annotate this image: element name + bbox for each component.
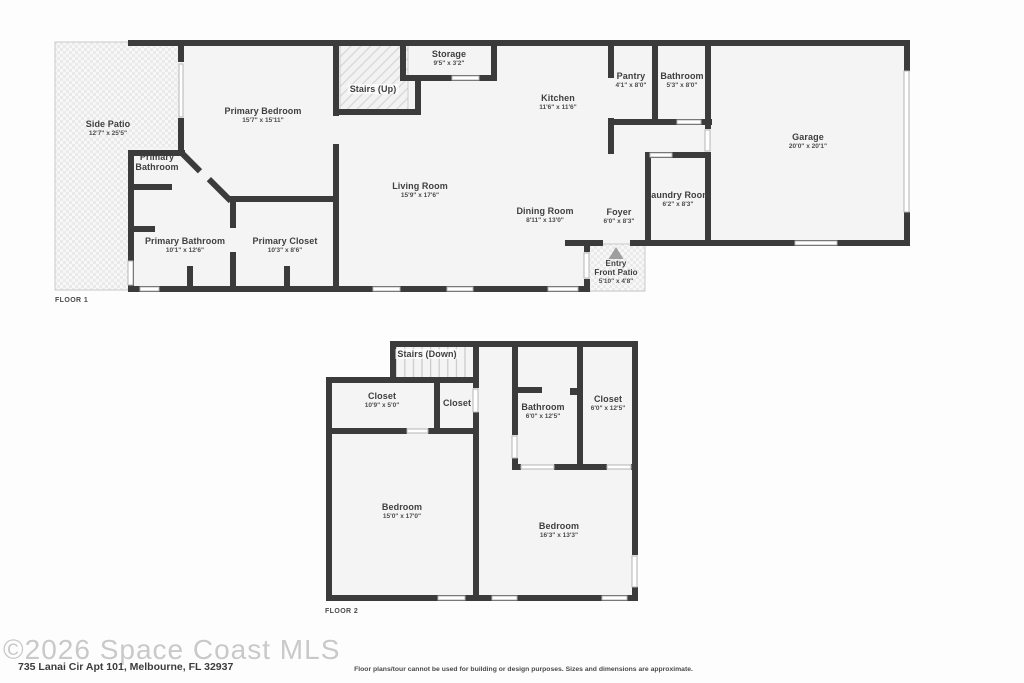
room-bedroom-2: Bedroom 16'3" x 13'3" xyxy=(539,521,579,540)
floor2-label: FLOOR 2 xyxy=(325,608,358,615)
room-stairs-down: Stairs (Down) xyxy=(395,349,458,359)
room-dims: 6'0" x 8'3" xyxy=(604,217,635,226)
room-name-2: Front Patio xyxy=(594,268,637,277)
disclaimer-text: Floor plans/tour cannot be used for buil… xyxy=(300,666,747,673)
floorplan-drawing xyxy=(0,0,1024,683)
room-name: Stairs (Down) xyxy=(395,349,458,359)
floorplan-page: Side Patio 12'7" x 25'5" Primary Bedroom… xyxy=(0,0,1024,683)
room-name: Pantry xyxy=(616,71,647,81)
room-name: Dining Room xyxy=(516,206,573,216)
room-name: Side Patio xyxy=(86,119,131,129)
room-dims: 6'0" x 12'5" xyxy=(591,404,626,413)
room-dims: 10'9" x 5'0" xyxy=(365,401,400,410)
room-foyer: Foyer 6'0" x 8'3" xyxy=(604,207,635,226)
room-closet-2: Closet xyxy=(443,398,471,408)
room-bedroom-1: Bedroom 15'0" x 17'0" xyxy=(382,502,422,521)
room-dims: 20'0" x 20'1" xyxy=(789,142,827,151)
room-closet-1: Closet 10'9" x 5'0" xyxy=(365,391,400,410)
room-primary-bathroom-small: Primary Bathroom xyxy=(128,152,186,172)
room-name: Bedroom xyxy=(382,502,422,512)
room-dims: 10'1" x 12'6" xyxy=(145,246,225,255)
room-dims: 5'3" x 8'0" xyxy=(660,81,703,90)
room-side-patio: Side Patio 12'7" x 25'5" xyxy=(86,119,131,138)
room-kitchen: Kitchen 11'6" x 11'6" xyxy=(539,93,576,112)
room-closet-3: Closet 6'0" x 12'5" xyxy=(591,394,626,413)
room-living: Living Room 15'9" x 17'6" xyxy=(392,181,448,200)
room-dims: 15'7" x 15'11" xyxy=(224,116,301,125)
room-dims: 16'3" x 13'3" xyxy=(539,531,579,540)
room-dining: Dining Room 8'11" x 13'0" xyxy=(516,206,573,225)
room-storage: Storage 9'5" x 3'2" xyxy=(432,49,466,68)
room-dims: 6'2" x 8'3" xyxy=(646,200,711,209)
room-dims: 12'7" x 25'5" xyxy=(86,129,131,138)
room-primary-bathroom: Primary Bathroom 10'1" x 12'6" xyxy=(145,236,225,255)
room-primary-bedroom: Primary Bedroom 15'7" x 15'11" xyxy=(224,106,301,125)
room-name: Primary Closet xyxy=(253,236,318,246)
room-name: Stairs (Up) xyxy=(348,84,399,94)
room-garage: Garage 20'0" x 20'1" xyxy=(789,132,827,151)
room-dims: 10'3" x 8'6" xyxy=(253,246,318,255)
room-name: Bathroom xyxy=(660,71,703,81)
room-dims: 4'1" x 8'0" xyxy=(616,81,647,90)
room-name: Kitchen xyxy=(539,93,576,103)
room-name: Primary Bedroom xyxy=(224,106,301,116)
room-name: Closet xyxy=(365,391,400,401)
room-dims: 6'0" x 12'5" xyxy=(521,412,564,421)
room-name: Laundry Room xyxy=(646,190,711,200)
room-dims: 5'10" x 4'8" xyxy=(594,277,637,286)
room-dims: 9'5" x 3'2" xyxy=(432,59,466,68)
property-address: 735 Lanai Cir Apt 101, Melbourne, FL 329… xyxy=(18,661,233,673)
room-bathroom-f1: Bathroom 5'3" x 8'0" xyxy=(660,71,703,90)
room-dims: 15'0" x 17'0" xyxy=(382,512,422,521)
room-laundry: Laundry Room 6'2" x 8'3" xyxy=(646,190,711,209)
room-name: Bedroom xyxy=(539,521,579,531)
room-name: Primary Bathroom xyxy=(145,236,225,246)
room-primary-closet: Primary Closet 10'3" x 8'6" xyxy=(253,236,318,255)
room-dims: 8'11" x 13'0" xyxy=(516,216,573,225)
room-name: Entry xyxy=(594,259,637,268)
room-dims: 15'9" x 17'6" xyxy=(392,191,448,200)
room-pantry: Pantry 4'1" x 8'0" xyxy=(616,71,647,90)
room-name: Primary Bathroom xyxy=(128,152,186,172)
room-name: Storage xyxy=(432,49,466,59)
room-name: Closet xyxy=(591,394,626,404)
room-name: Garage xyxy=(789,132,827,142)
room-name: Closet xyxy=(443,398,471,408)
room-dims: 11'6" x 11'6" xyxy=(539,103,576,112)
room-name: Bathroom xyxy=(521,402,564,412)
room-entry-front-patio: Entry Front Patio 5'10" x 4'8" xyxy=(594,259,637,286)
room-name: Living Room xyxy=(392,181,448,191)
room-name: Foyer xyxy=(604,207,635,217)
floor1-label: FLOOR 1 xyxy=(55,297,88,304)
room-stairs-up: Stairs (Up) xyxy=(348,84,399,94)
room-bathroom-f2: Bathroom 6'0" x 12'5" xyxy=(521,402,564,421)
